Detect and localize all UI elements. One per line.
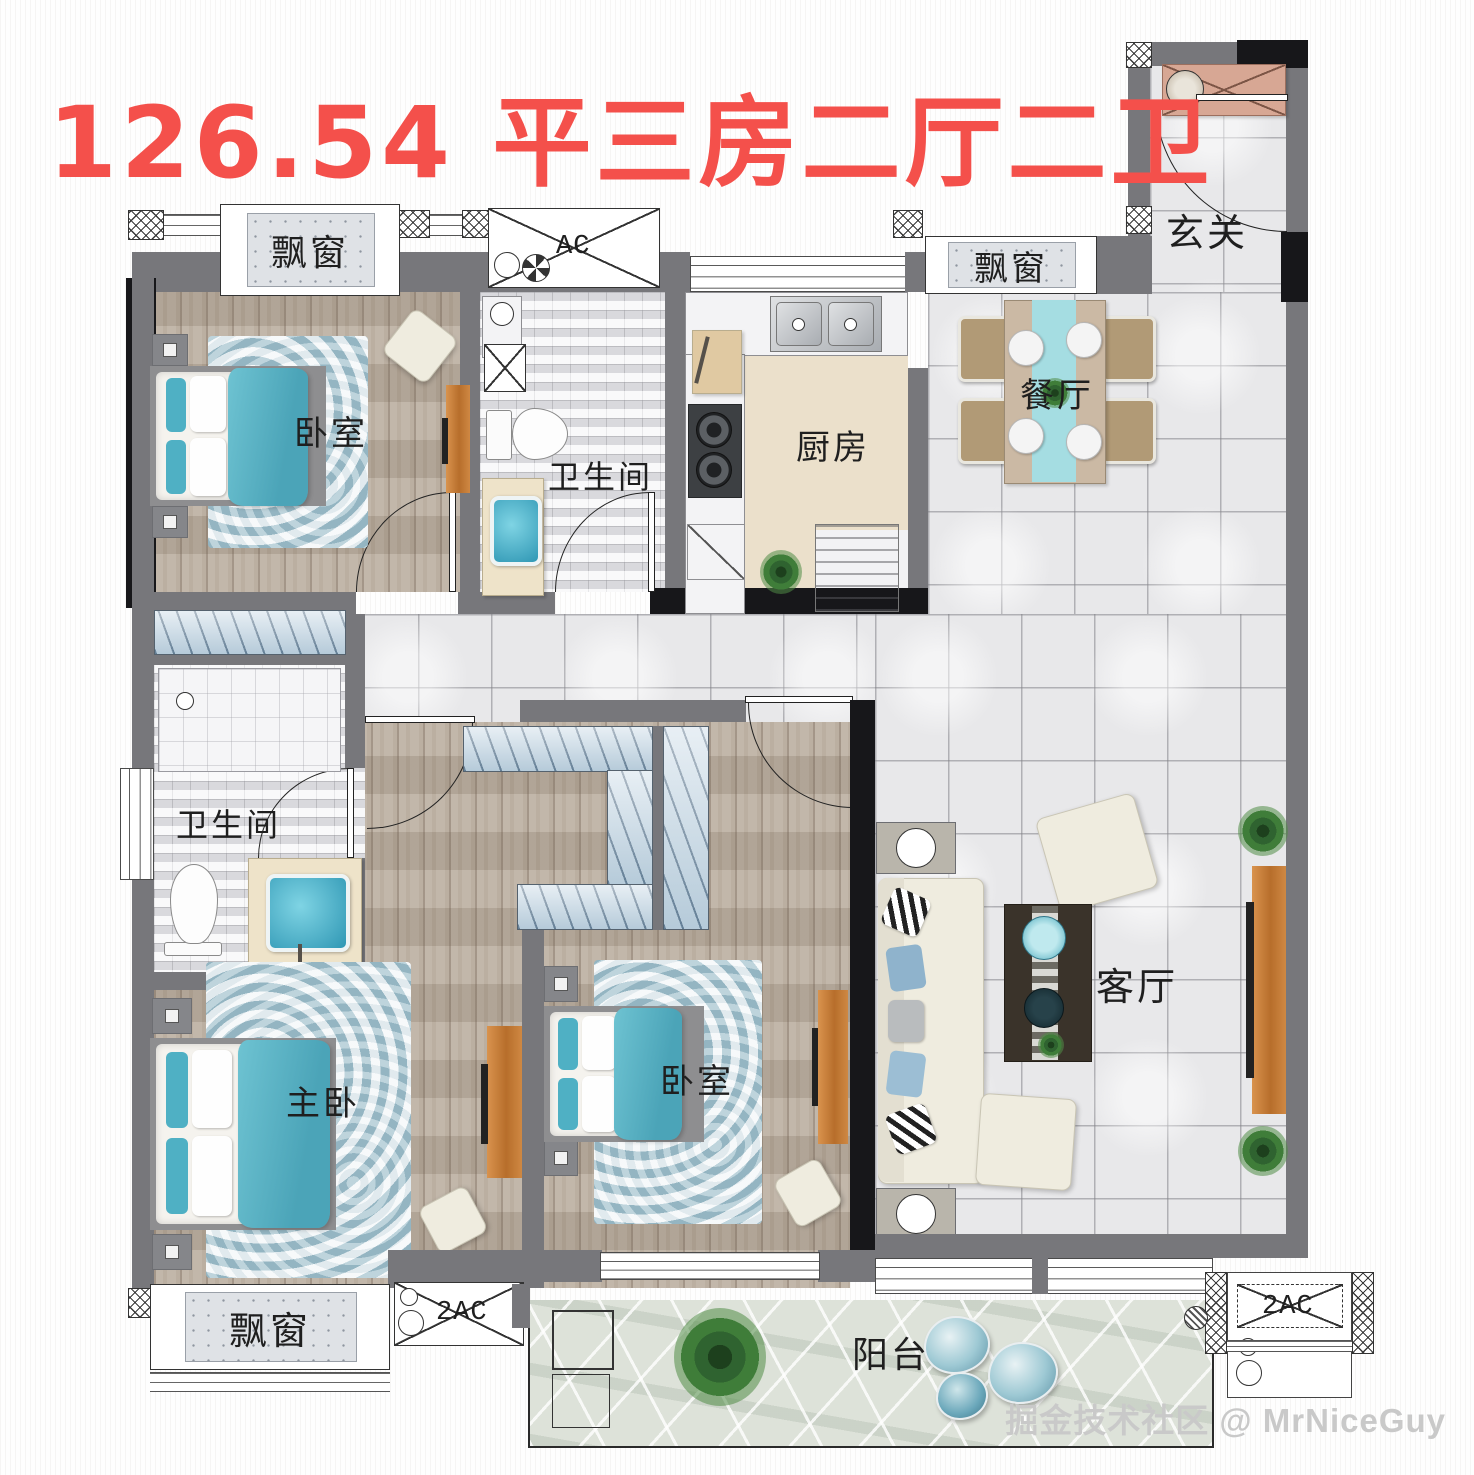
floorplan-page: { "title": "126.54 平三房二厅二卫", "watermark"… bbox=[0, 0, 1474, 1475]
bathtop-faucet-icon bbox=[490, 302, 514, 326]
bedroom2-nightstand-1 bbox=[544, 966, 578, 1002]
bay-window-label: 飘窗 bbox=[229, 1300, 311, 1355]
wall-bathmaster-right-a bbox=[345, 655, 365, 768]
ac-pipe-1 bbox=[494, 252, 520, 278]
bathmaster-toilet-tank bbox=[164, 942, 222, 956]
kitchen-drain-1 bbox=[792, 318, 805, 331]
bedroom2-door-leaf bbox=[745, 696, 853, 703]
label-entry: 玄关 bbox=[1166, 202, 1248, 257]
kitchen-drain-2 bbox=[844, 318, 857, 331]
label-balcony: 阳台 bbox=[852, 1326, 930, 1378]
bedroomtop-nightstand-2 bbox=[152, 506, 188, 538]
label-master: 主卧 bbox=[286, 1076, 360, 1125]
ac-bl-pipe-2 bbox=[398, 1310, 424, 1336]
coffee-table-plant bbox=[1038, 1032, 1064, 1058]
closet-master-bottom bbox=[517, 884, 653, 930]
label-bedroom-top: 卧室 bbox=[294, 406, 368, 455]
master-wardrobe bbox=[487, 1026, 522, 1178]
bathmaster-shower bbox=[158, 668, 341, 772]
bedroomtop-pillow-1 bbox=[190, 376, 226, 432]
living-bowl-top bbox=[896, 828, 936, 868]
master-nightstand-1 bbox=[152, 998, 192, 1034]
bay-window-bottom-left: 飘窗 bbox=[150, 1284, 390, 1370]
living-plant-bottom bbox=[1238, 1126, 1288, 1176]
bathmaster-basin bbox=[266, 874, 350, 952]
living-pillow-blue-1 bbox=[885, 944, 927, 993]
bay-window-top-left: 飘窗 bbox=[220, 204, 400, 296]
label-living: 客厅 bbox=[1096, 956, 1178, 1011]
kitchen-cabinet-bottom bbox=[687, 524, 745, 580]
hatch-bottom-left bbox=[128, 1288, 152, 1318]
label-dining: 餐厅 bbox=[1020, 368, 1094, 417]
master-blanket bbox=[238, 1040, 330, 1228]
master-pillow-2 bbox=[192, 1136, 232, 1216]
master-nightstand-2 bbox=[152, 1234, 192, 1270]
bedroomtop-tv bbox=[442, 418, 448, 464]
bedroom2-balcony-window bbox=[600, 1252, 820, 1280]
label-bath-master: 卫生间 bbox=[176, 800, 281, 846]
ac-bl-pipe-1 bbox=[400, 1288, 418, 1306]
entry-hatch-bottom bbox=[1126, 206, 1152, 234]
dining-plate-3 bbox=[1008, 418, 1044, 454]
ac-br-pipe-2 bbox=[1236, 1360, 1262, 1386]
coffee-table-plate-teal bbox=[1022, 916, 1066, 960]
kitchen-fridge bbox=[815, 524, 899, 612]
bedroom2-pillow-teal-1 bbox=[558, 1018, 578, 1070]
wall-closet-divider bbox=[653, 726, 663, 930]
dining-chair-3 bbox=[1100, 316, 1156, 382]
bedroomtop-wardrobe bbox=[446, 385, 470, 493]
dining-plate-4 bbox=[1066, 424, 1102, 460]
coffee-table-bowl-dark bbox=[1024, 988, 1064, 1028]
wall-bottom-living bbox=[875, 1234, 1286, 1258]
bathtop-shaft bbox=[484, 344, 526, 392]
bathtop-basin bbox=[490, 496, 542, 566]
balcony-window-mullion bbox=[1032, 1258, 1048, 1294]
wall-bathmaster-divider bbox=[154, 655, 365, 665]
master-pillow-1 bbox=[192, 1050, 232, 1128]
ac-label-bottom-left: 2AC bbox=[436, 1298, 488, 1328]
wall-right-black-seg bbox=[1281, 232, 1308, 302]
dining-chair-4 bbox=[1100, 398, 1156, 464]
bedroomtop-nightstand-1 bbox=[152, 334, 188, 366]
bedroomtop-pillow-teal-2 bbox=[166, 440, 186, 494]
hatch-2ac-right-l bbox=[1205, 1272, 1227, 1354]
label-bedroom-second: 卧室 bbox=[660, 1054, 734, 1103]
wall-master-bedroom2 bbox=[522, 930, 544, 1288]
wall-bottom-bedroom2-r bbox=[818, 1250, 875, 1282]
bathtop-toilet-tank bbox=[486, 410, 512, 460]
ac-label-top: AC bbox=[556, 232, 590, 262]
plan-title: 126.54 平三房二厅二卫 bbox=[48, 62, 1214, 206]
closet-master-right bbox=[607, 770, 653, 886]
master-tv bbox=[481, 1064, 488, 1144]
closet-bedroom2 bbox=[663, 726, 709, 930]
wall-bedroom2-top bbox=[520, 700, 746, 722]
kitchen-plant bbox=[760, 550, 802, 594]
closet-master-top bbox=[463, 726, 653, 772]
bathmaster-toilet-bowl bbox=[170, 864, 218, 944]
balcony-left-post bbox=[512, 1284, 530, 1328]
hatch-top-1 bbox=[128, 210, 164, 240]
hatch-top-4 bbox=[893, 210, 923, 238]
bedroom2-pillow-teal-2 bbox=[558, 1078, 578, 1130]
bedroomtop-pillow-teal-1 bbox=[166, 378, 186, 432]
wall-kitchen-dining bbox=[908, 368, 928, 614]
dining-plate-2 bbox=[1066, 322, 1102, 358]
living-tv-console bbox=[1252, 866, 1286, 1114]
ac-label-bottom-right: 2AC bbox=[1262, 1292, 1314, 1322]
bedroom2-wardrobe bbox=[818, 990, 848, 1144]
closet-bedroomtop bbox=[154, 610, 346, 655]
hatch-top-2 bbox=[396, 210, 430, 238]
watermark: 掘金技术社区 @ MrNiceGuy bbox=[1005, 1394, 1446, 1442]
label-bath-top: 卫生间 bbox=[548, 452, 653, 498]
bedroom2-nightstand-2 bbox=[544, 1140, 578, 1176]
living-pillow-gray bbox=[888, 1000, 924, 1042]
living-armchair-bottom bbox=[975, 1093, 1077, 1191]
bedroom2-pillow-1 bbox=[582, 1016, 616, 1070]
living-plant-top bbox=[1238, 806, 1288, 856]
living-bowl-bottom bbox=[896, 1194, 936, 1234]
label-kitchen: 厨房 bbox=[796, 420, 870, 469]
bay-window-top-right: 飘窗 bbox=[925, 236, 1097, 294]
mastersuite-door-leaf bbox=[365, 716, 475, 723]
hatch-2ac-right-r bbox=[1352, 1272, 1374, 1354]
wall-bath-kitchen bbox=[665, 292, 685, 614]
bedroom2-tv bbox=[812, 1028, 818, 1106]
balcony-corner-drain bbox=[1184, 1306, 1208, 1330]
wall-top-kitchen-l bbox=[668, 252, 690, 292]
window-sill-bottom-left bbox=[150, 1372, 390, 1392]
kitchen-burner-2 bbox=[696, 452, 732, 488]
bathmaster-drain bbox=[176, 692, 194, 710]
wall-top-b bbox=[396, 252, 482, 292]
wall-bedroom2-living bbox=[850, 700, 875, 1256]
wall-bottom-bedroom2-l bbox=[544, 1250, 602, 1282]
kitchen-burner-1 bbox=[696, 412, 732, 448]
ac-pipe-2 bbox=[522, 254, 550, 282]
balcony-drain-box bbox=[552, 1310, 614, 1370]
master-pillow-teal-1 bbox=[166, 1052, 188, 1128]
kitchen-window bbox=[690, 256, 908, 292]
balcony-x-box bbox=[552, 1374, 610, 1428]
bay-window-label: 飘窗 bbox=[974, 241, 1048, 290]
bay-window-label: 飘窗 bbox=[271, 224, 349, 276]
master-pillow-teal-2 bbox=[166, 1138, 188, 1214]
sill-2ac-right bbox=[1227, 1340, 1352, 1352]
living-pillow-blue-2 bbox=[885, 1050, 926, 1098]
bedroom2-pillow-2 bbox=[582, 1076, 616, 1132]
living-tv bbox=[1246, 902, 1254, 1078]
wall-bottom-master-l bbox=[132, 1250, 152, 1288]
balcony-plant bbox=[674, 1308, 766, 1406]
bath-master-window bbox=[120, 768, 154, 880]
dining-plate-1 bbox=[1008, 330, 1044, 366]
bedroomtop-pillow-2 bbox=[190, 438, 226, 496]
